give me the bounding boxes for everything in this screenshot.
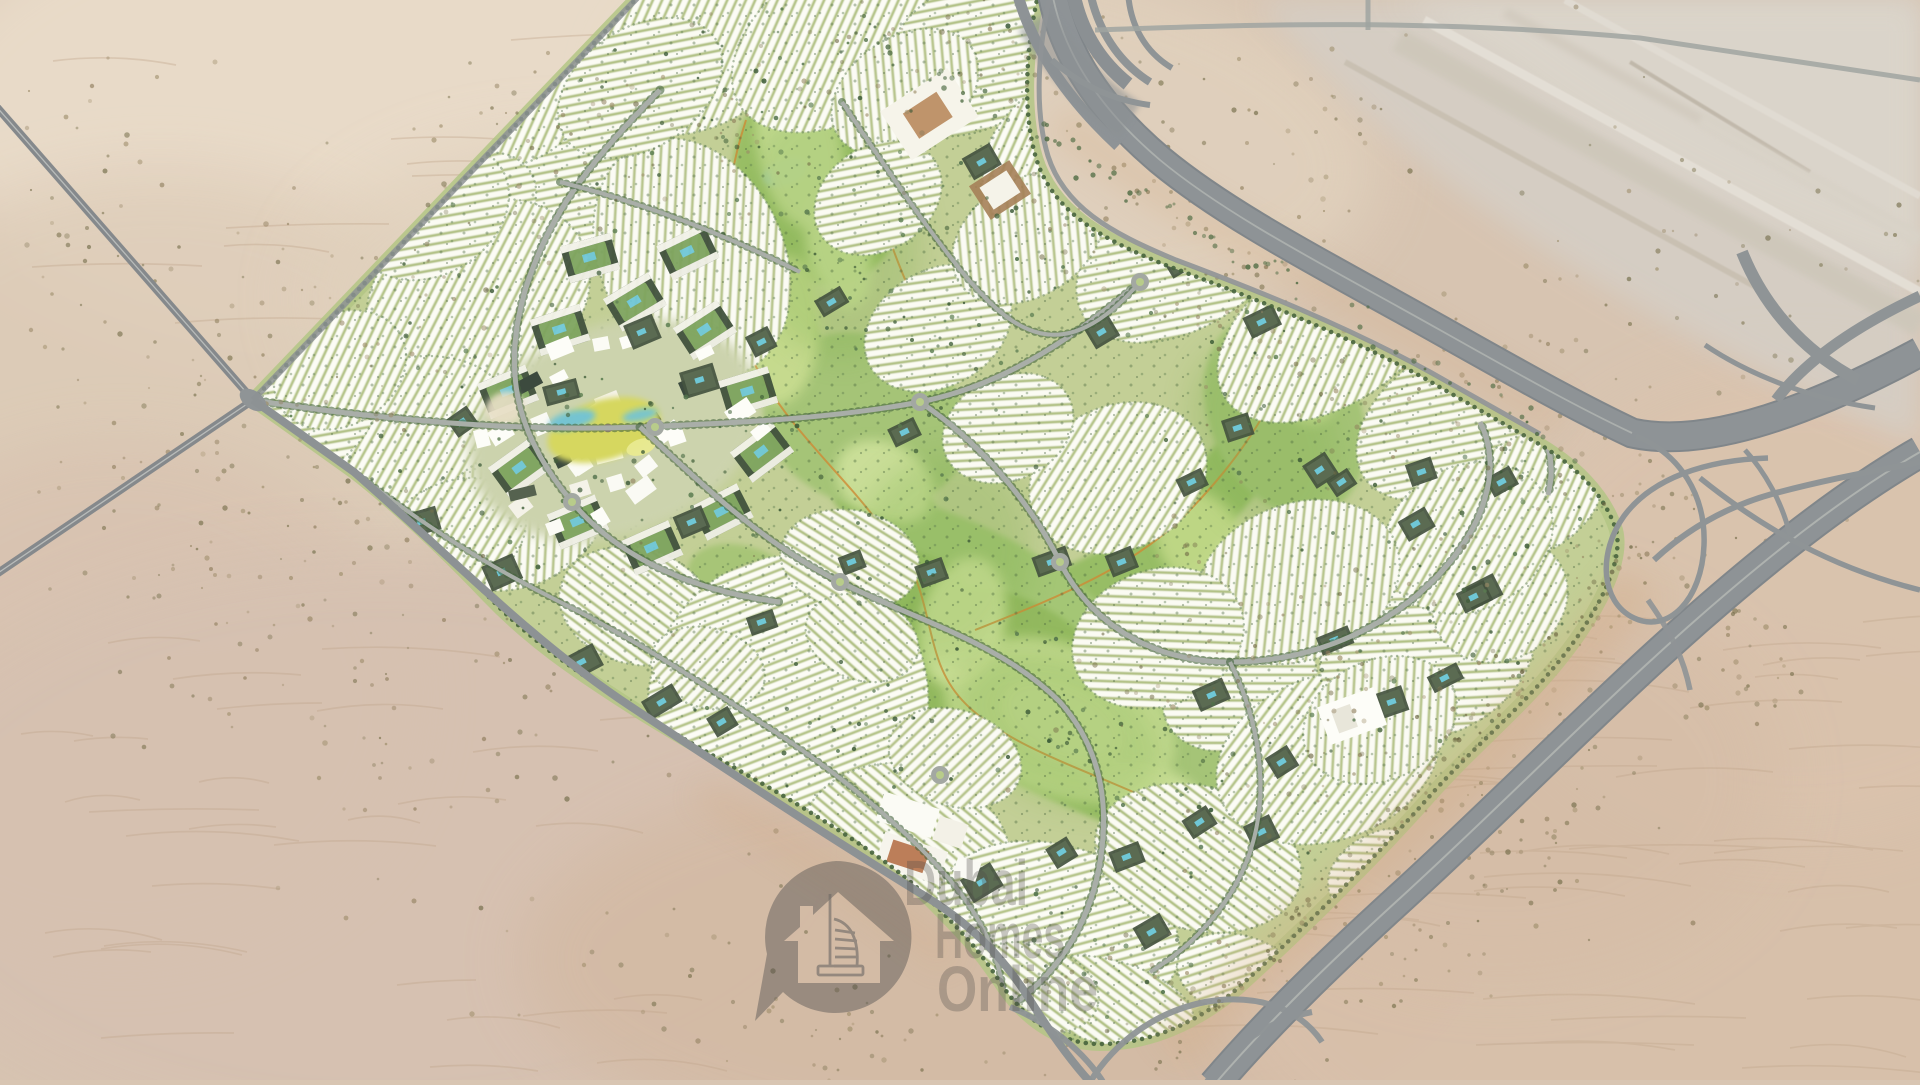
svg-text:Online: Online [937, 953, 1098, 1025]
